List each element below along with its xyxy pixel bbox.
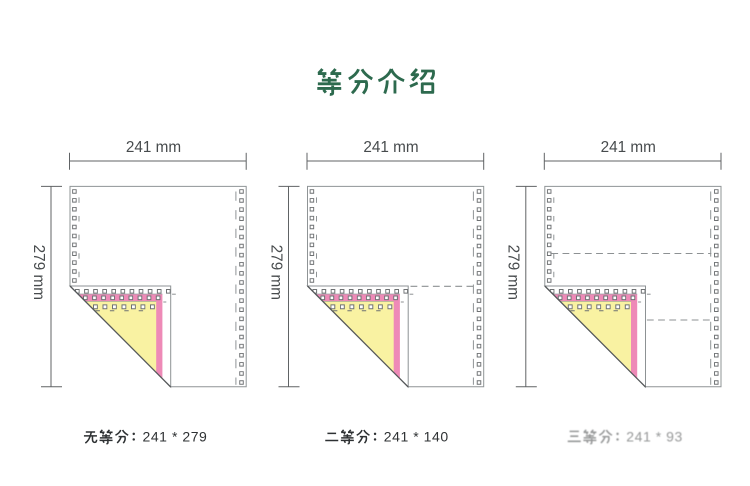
svg-text:241 * 279: 241 * 279	[143, 428, 208, 444]
svg-text:279 mm: 279 mm	[30, 245, 47, 300]
svg-text:241 * 140: 241 * 140	[384, 428, 449, 444]
svg-text:241 mm: 241 mm	[363, 139, 418, 156]
svg-text:241 mm: 241 mm	[126, 139, 181, 156]
svg-text:241 * 93: 241 * 93	[626, 428, 683, 444]
svg-text:279 mm: 279 mm	[505, 245, 522, 300]
svg-text:241 mm: 241 mm	[601, 139, 656, 156]
svg-text:279 mm: 279 mm	[267, 245, 284, 300]
